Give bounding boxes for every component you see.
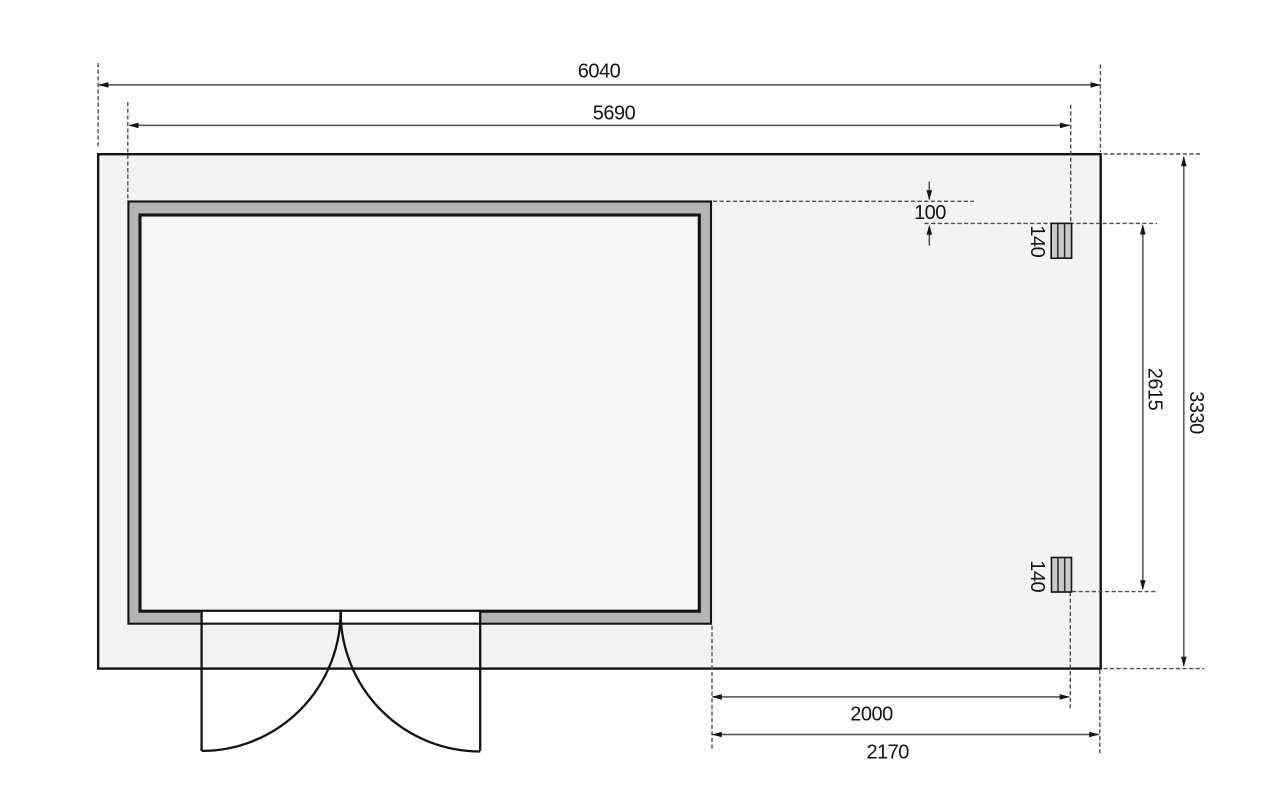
svg-text:140: 140 (1026, 560, 1048, 592)
svg-text:5690: 5690 (593, 103, 636, 125)
svg-text:3330: 3330 (1185, 391, 1207, 434)
svg-text:6040: 6040 (578, 61, 621, 83)
svg-text:2170: 2170 (866, 742, 909, 764)
svg-text:2000: 2000 (850, 704, 893, 726)
svg-text:100: 100 (914, 202, 946, 224)
svg-text:140: 140 (1026, 225, 1048, 257)
svg-text:2615: 2615 (1144, 368, 1166, 411)
